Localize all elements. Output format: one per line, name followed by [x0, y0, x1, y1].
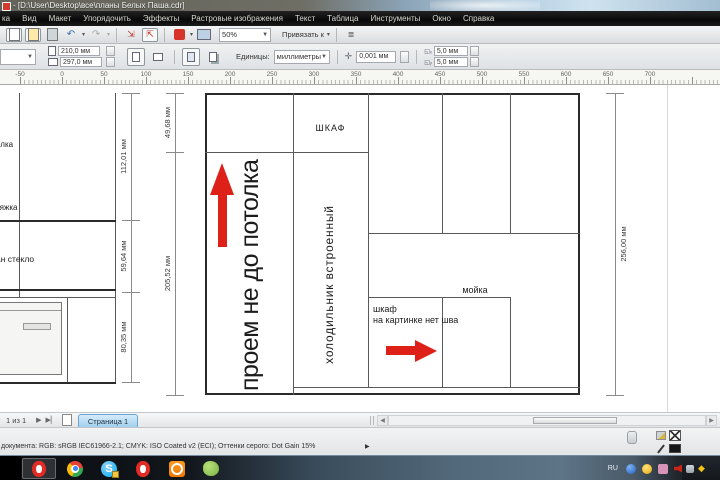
orange-app-icon: [169, 461, 185, 477]
duplicate-y-stepper[interactable]: [470, 57, 479, 67]
tray-overflow-area: ◆: [682, 456, 720, 480]
page-right-edge: [667, 85, 668, 412]
tray-blue-app-icon[interactable]: [626, 464, 636, 474]
duplicate-x-icon: ◱ₓ: [424, 48, 432, 55]
app-icon: [2, 2, 11, 11]
corel-app-icon: [174, 29, 185, 40]
fill-bucket-icon[interactable]: [656, 431, 666, 440]
duplicate-y-icon: ◱ᵧ: [424, 59, 432, 66]
wallpaper-glow: [430, 0, 540, 11]
menu-item-tekst[interactable]: Текст: [295, 14, 315, 23]
outline-pen-icon[interactable]: [657, 444, 665, 453]
arrow-right-shaft: [386, 346, 416, 355]
menu-item-instrumenty[interactable]: Инструменты: [371, 14, 421, 23]
duplicate-x-stepper[interactable]: [470, 46, 479, 56]
wall-line: [442, 93, 443, 233]
document-color-info: документа: RGB: sRGB IEC61966-2.1; CMYK:…: [1, 443, 315, 450]
ruler-label: 550: [519, 71, 530, 78]
ruler-label: 650: [603, 71, 614, 78]
redo-dropdown[interactable]: ▾: [107, 31, 110, 38]
wall-line: [19, 93, 20, 297]
redo-icon: ↷: [92, 29, 100, 40]
dimension-label[interactable]: 112,01 мм: [119, 93, 128, 220]
note-text[interactable]: шкаф на картинке нет шва: [373, 304, 458, 326]
zoom-level-combo[interactable]: 50% ▼: [219, 28, 271, 42]
toolbar-separator: [174, 50, 175, 64]
wall-line: [0, 297, 116, 298]
duplicate-x-field[interactable]: 5,0 мм: [434, 46, 468, 56]
dimension-line: [175, 93, 176, 395]
cabinet-top-label[interactable]: ШКАФ: [293, 123, 368, 133]
drawing-canvas[interactable]: олка тяжка ан стекло 112,01 мм 59,64 мм …: [0, 85, 720, 412]
snap-to-label: Привязать к: [282, 30, 324, 39]
export-button[interactable]: ⇱: [142, 28, 158, 42]
new-document-button[interactable]: [6, 28, 22, 42]
menu-item-tablitsa[interactable]: Таблица: [327, 14, 358, 23]
dimension-tick: [166, 395, 184, 396]
next-page-button[interactable]: ▶: [36, 416, 41, 424]
ruler-label: 400: [393, 71, 404, 78]
current-page-icon: [187, 52, 195, 62]
nudge-distance-field[interactable]: 0,001 мм: [356, 51, 396, 63]
system-tray: RU ⚑ ◆: [608, 456, 720, 480]
wall-line: [0, 382, 116, 384]
wall-line: [368, 93, 369, 387]
menu-item-okno[interactable]: Окно: [432, 14, 451, 23]
page-counter: 1 из 1: [6, 416, 26, 425]
dimension-line: [131, 93, 132, 383]
import-button[interactable]: ⇲: [123, 28, 139, 42]
outline-color-swatch[interactable]: [669, 444, 681, 453]
scroll-left-button[interactable]: ◀: [377, 415, 388, 426]
snap-to-dropdown[interactable]: Привязать к ▾: [282, 30, 330, 39]
chevron-down-icon: ▼: [262, 32, 268, 38]
launcher-dropdown[interactable]: ▾: [190, 31, 193, 38]
nudge-stepper[interactable]: [400, 51, 409, 63]
portrait-icon: [132, 52, 140, 62]
chevron-down-icon: ▼: [27, 54, 33, 60]
dimension-label[interactable]: 80,35 мм: [119, 292, 128, 382]
taskbar-orange-app[interactable]: [160, 458, 194, 479]
tray-diamond-icon[interactable]: ◆: [698, 464, 705, 473]
opera-icon: [136, 461, 150, 477]
status-bar: документа: RGB: sRGB IEC61966-2.1; CMYK:…: [0, 427, 720, 455]
redo-button[interactable]: ↷: [88, 28, 104, 42]
dimension-label[interactable]: 49,68 мм: [163, 93, 172, 152]
ruler-label: 700: [645, 71, 656, 78]
ruler-label: 200: [225, 71, 236, 78]
scrollbar-splitter[interactable]: [370, 416, 376, 425]
all-pages-icon: [209, 52, 217, 62]
chevron-down-icon: ▾: [327, 31, 330, 38]
ruler-label: 150: [183, 71, 194, 78]
options-button[interactable]: ≣: [343, 28, 359, 42]
duplicate-y-field[interactable]: 5,0 мм: [434, 57, 468, 67]
ruler-label: 300: [309, 71, 320, 78]
toolbar-separator: [337, 50, 338, 64]
options-icon: ≣: [348, 30, 355, 39]
taskbar-opera-active[interactable]: [22, 458, 56, 479]
ruler-label: 600: [561, 71, 572, 78]
ruler-label: 500: [477, 71, 488, 78]
undo-icon: ↶: [67, 29, 75, 40]
nudge-icon: ✛: [345, 51, 353, 62]
toolbar-separator: [416, 50, 417, 64]
menu-item-effekty[interactable]: Эффекты: [143, 14, 179, 23]
appliance-line: [0, 310, 61, 311]
screen-icon: [197, 29, 211, 40]
page-height-field[interactable]: 297,0 мм: [60, 57, 102, 67]
wall-line: [510, 93, 511, 233]
glass-screen-label[interactable]: ан стекло: [0, 254, 34, 264]
page-height-icon: [48, 58, 58, 66]
menu-bar: ка Вид Макет Упорядочить Эффекты Растров…: [0, 11, 720, 26]
cursor-status-icon: [627, 431, 637, 444]
open-button[interactable]: [25, 28, 41, 42]
title-bar[interactable]: - [D:\User\Desktop\все\планы Белых Паша.…: [0, 0, 720, 11]
paste-button[interactable]: [44, 28, 60, 42]
folder-icon: [28, 28, 39, 41]
sink-label[interactable]: мойка: [440, 285, 510, 295]
shelf-label[interactable]: олка: [0, 140, 13, 149]
taskbar-green-app[interactable]: [194, 458, 228, 479]
tray-pink-app-icon[interactable]: [658, 464, 668, 474]
all-pages-settings-button[interactable]: [204, 48, 222, 66]
dimension-label[interactable]: 256,00 мм: [619, 93, 628, 395]
opening-label[interactable]: проем не до потолка: [236, 163, 265, 391]
lock-icon: [112, 471, 119, 478]
fridge-label[interactable]: холодильник встроенный: [322, 197, 336, 372]
current-page-settings-button[interactable]: [182, 48, 200, 66]
page-tab[interactable]: Страница 1: [78, 414, 138, 428]
dimension-line: [615, 93, 616, 395]
chevron-down-icon: ▼: [321, 54, 327, 60]
tray-grid-icon[interactable]: [686, 465, 694, 473]
taskbar-chrome[interactable]: [58, 458, 92, 479]
window-title: - [D:\User\Desktop\все\планы Белых Паша.…: [13, 1, 184, 10]
duplicate-distance-group: ◱ₓ 5,0 мм ◱ᵧ 5,0 мм: [424, 46, 479, 67]
welcome-screen-button[interactable]: [196, 28, 212, 42]
fill-none-swatch[interactable]: [669, 430, 681, 441]
menu-item-spravka[interactable]: Справка: [463, 14, 494, 23]
wall-line: [0, 220, 116, 222]
dimension-label[interactable]: 205,52 мм: [163, 152, 172, 395]
arrow-up-shaft: [218, 194, 227, 247]
toolbar-separator: [116, 28, 117, 42]
scroll-right-button[interactable]: ▶: [706, 415, 717, 426]
ruler-label: 50: [100, 71, 107, 78]
wall-line: [0, 289, 116, 291]
document-icon: [9, 28, 20, 41]
taskbar-skype[interactable]: S: [92, 458, 126, 479]
page-size-preset-combo[interactable]: ▼: [0, 49, 36, 65]
horizontal-scrollbar[interactable]: [388, 415, 706, 426]
export-icon: ⇱: [146, 29, 154, 40]
arrow-right-head: [415, 340, 437, 362]
ruler-label: 350: [351, 71, 362, 78]
green-app-icon: [203, 461, 219, 476]
taskbar-left-block: [0, 456, 21, 480]
ruler-label: 100: [141, 71, 152, 78]
appliance-handle: [23, 323, 51, 330]
menu-item-rastrovye[interactable]: Растровые изображения: [191, 14, 283, 23]
arrow-up-head: [210, 163, 234, 195]
page-height-stepper[interactable]: [106, 57, 115, 67]
landscape-icon: [153, 53, 163, 61]
language-indicator[interactable]: RU: [608, 465, 618, 472]
note-line-2: на картинке нет шва: [373, 315, 458, 326]
menu-item-pravka[interactable]: ка: [2, 14, 10, 23]
application-launcher-button[interactable]: [171, 28, 187, 42]
units-label: Единицы:: [236, 52, 270, 61]
opera-icon: [32, 461, 46, 477]
portrait-button[interactable]: [127, 48, 145, 66]
units-combo[interactable]: миллиметры ▼: [274, 50, 330, 64]
import-icon: ⇲: [127, 29, 135, 40]
wall-line: [67, 297, 68, 382]
dimension-tick: [122, 382, 140, 383]
ruler-label: 450: [435, 71, 446, 78]
status-expand-arrow[interactable]: ▶: [365, 443, 370, 450]
wall-line: [115, 93, 116, 382]
property-bar: ▼ 210,0 мм 297,0 мм Единицы: миллиметры …: [0, 44, 720, 70]
note-line-1: шкаф: [373, 304, 458, 315]
windows-taskbar: S RU ⚑ ◆: [0, 455, 720, 480]
page-width-stepper[interactable]: [106, 46, 115, 56]
wall-line: [293, 93, 294, 395]
dishwasher-drawing[interactable]: [0, 302, 62, 375]
horizontal-ruler[interactable]: -500501001502002503003504004505005506006…: [0, 70, 720, 85]
hood-label[interactable]: тяжка: [0, 203, 17, 212]
menu-item-maket[interactable]: Макет: [49, 14, 72, 23]
add-page-icon[interactable]: [62, 414, 72, 426]
page-navigation-bar: 1 из 1 ▶ ▶▏ Страница 1 ◀ ▶: [0, 412, 720, 427]
landscape-button[interactable]: [149, 48, 167, 66]
page-dimension-steppers: [106, 46, 115, 67]
scrollbar-thumb[interactable]: [533, 417, 617, 424]
toolbar-separator: [164, 28, 165, 42]
chrome-icon: [67, 461, 83, 477]
taskbar-opera-2[interactable]: [126, 458, 160, 479]
coreldraw-window: - [D:\User\Desktop\все\планы Белых Паша.…: [0, 0, 720, 480]
wall-line: [368, 297, 510, 298]
wall-line: [205, 152, 368, 153]
undo-button[interactable]: ↶: [63, 28, 79, 42]
wall-line: [510, 297, 511, 387]
standard-toolbar: ↶ ▾ ↷ ▾ ⇲ ⇱ ▾ 50% ▼ Привязать к ▾ ≣: [0, 26, 720, 44]
wall-line: [368, 233, 580, 234]
ruler-label: 0: [60, 71, 64, 78]
page-width-icon: [48, 46, 56, 56]
last-page-button[interactable]: ▶▏: [46, 416, 57, 424]
toolbar-separator: [336, 28, 337, 42]
tray-antivirus-icon[interactable]: [642, 464, 652, 474]
wall-line: [293, 387, 580, 388]
page-dimensions-group: 210,0 мм 297,0 мм: [48, 46, 102, 67]
undo-dropdown[interactable]: ▾: [82, 31, 85, 38]
ruler-label: -50: [15, 71, 24, 78]
menu-item-uporyadochit[interactable]: Упорядочить: [83, 14, 131, 23]
zoom-level-value: 50%: [222, 30, 237, 39]
units-value: миллиметры: [277, 52, 321, 61]
dimension-label[interactable]: 59,64 мм: [119, 220, 128, 292]
skype-icon: S: [101, 461, 117, 477]
clipboard-icon: [47, 28, 58, 41]
dimension-tick: [606, 395, 624, 396]
menu-item-vid[interactable]: Вид: [22, 14, 36, 23]
ruler-label: 250: [267, 71, 278, 78]
page-tab-label: Страница 1: [88, 417, 128, 426]
page-width-field[interactable]: 210,0 мм: [58, 46, 100, 56]
